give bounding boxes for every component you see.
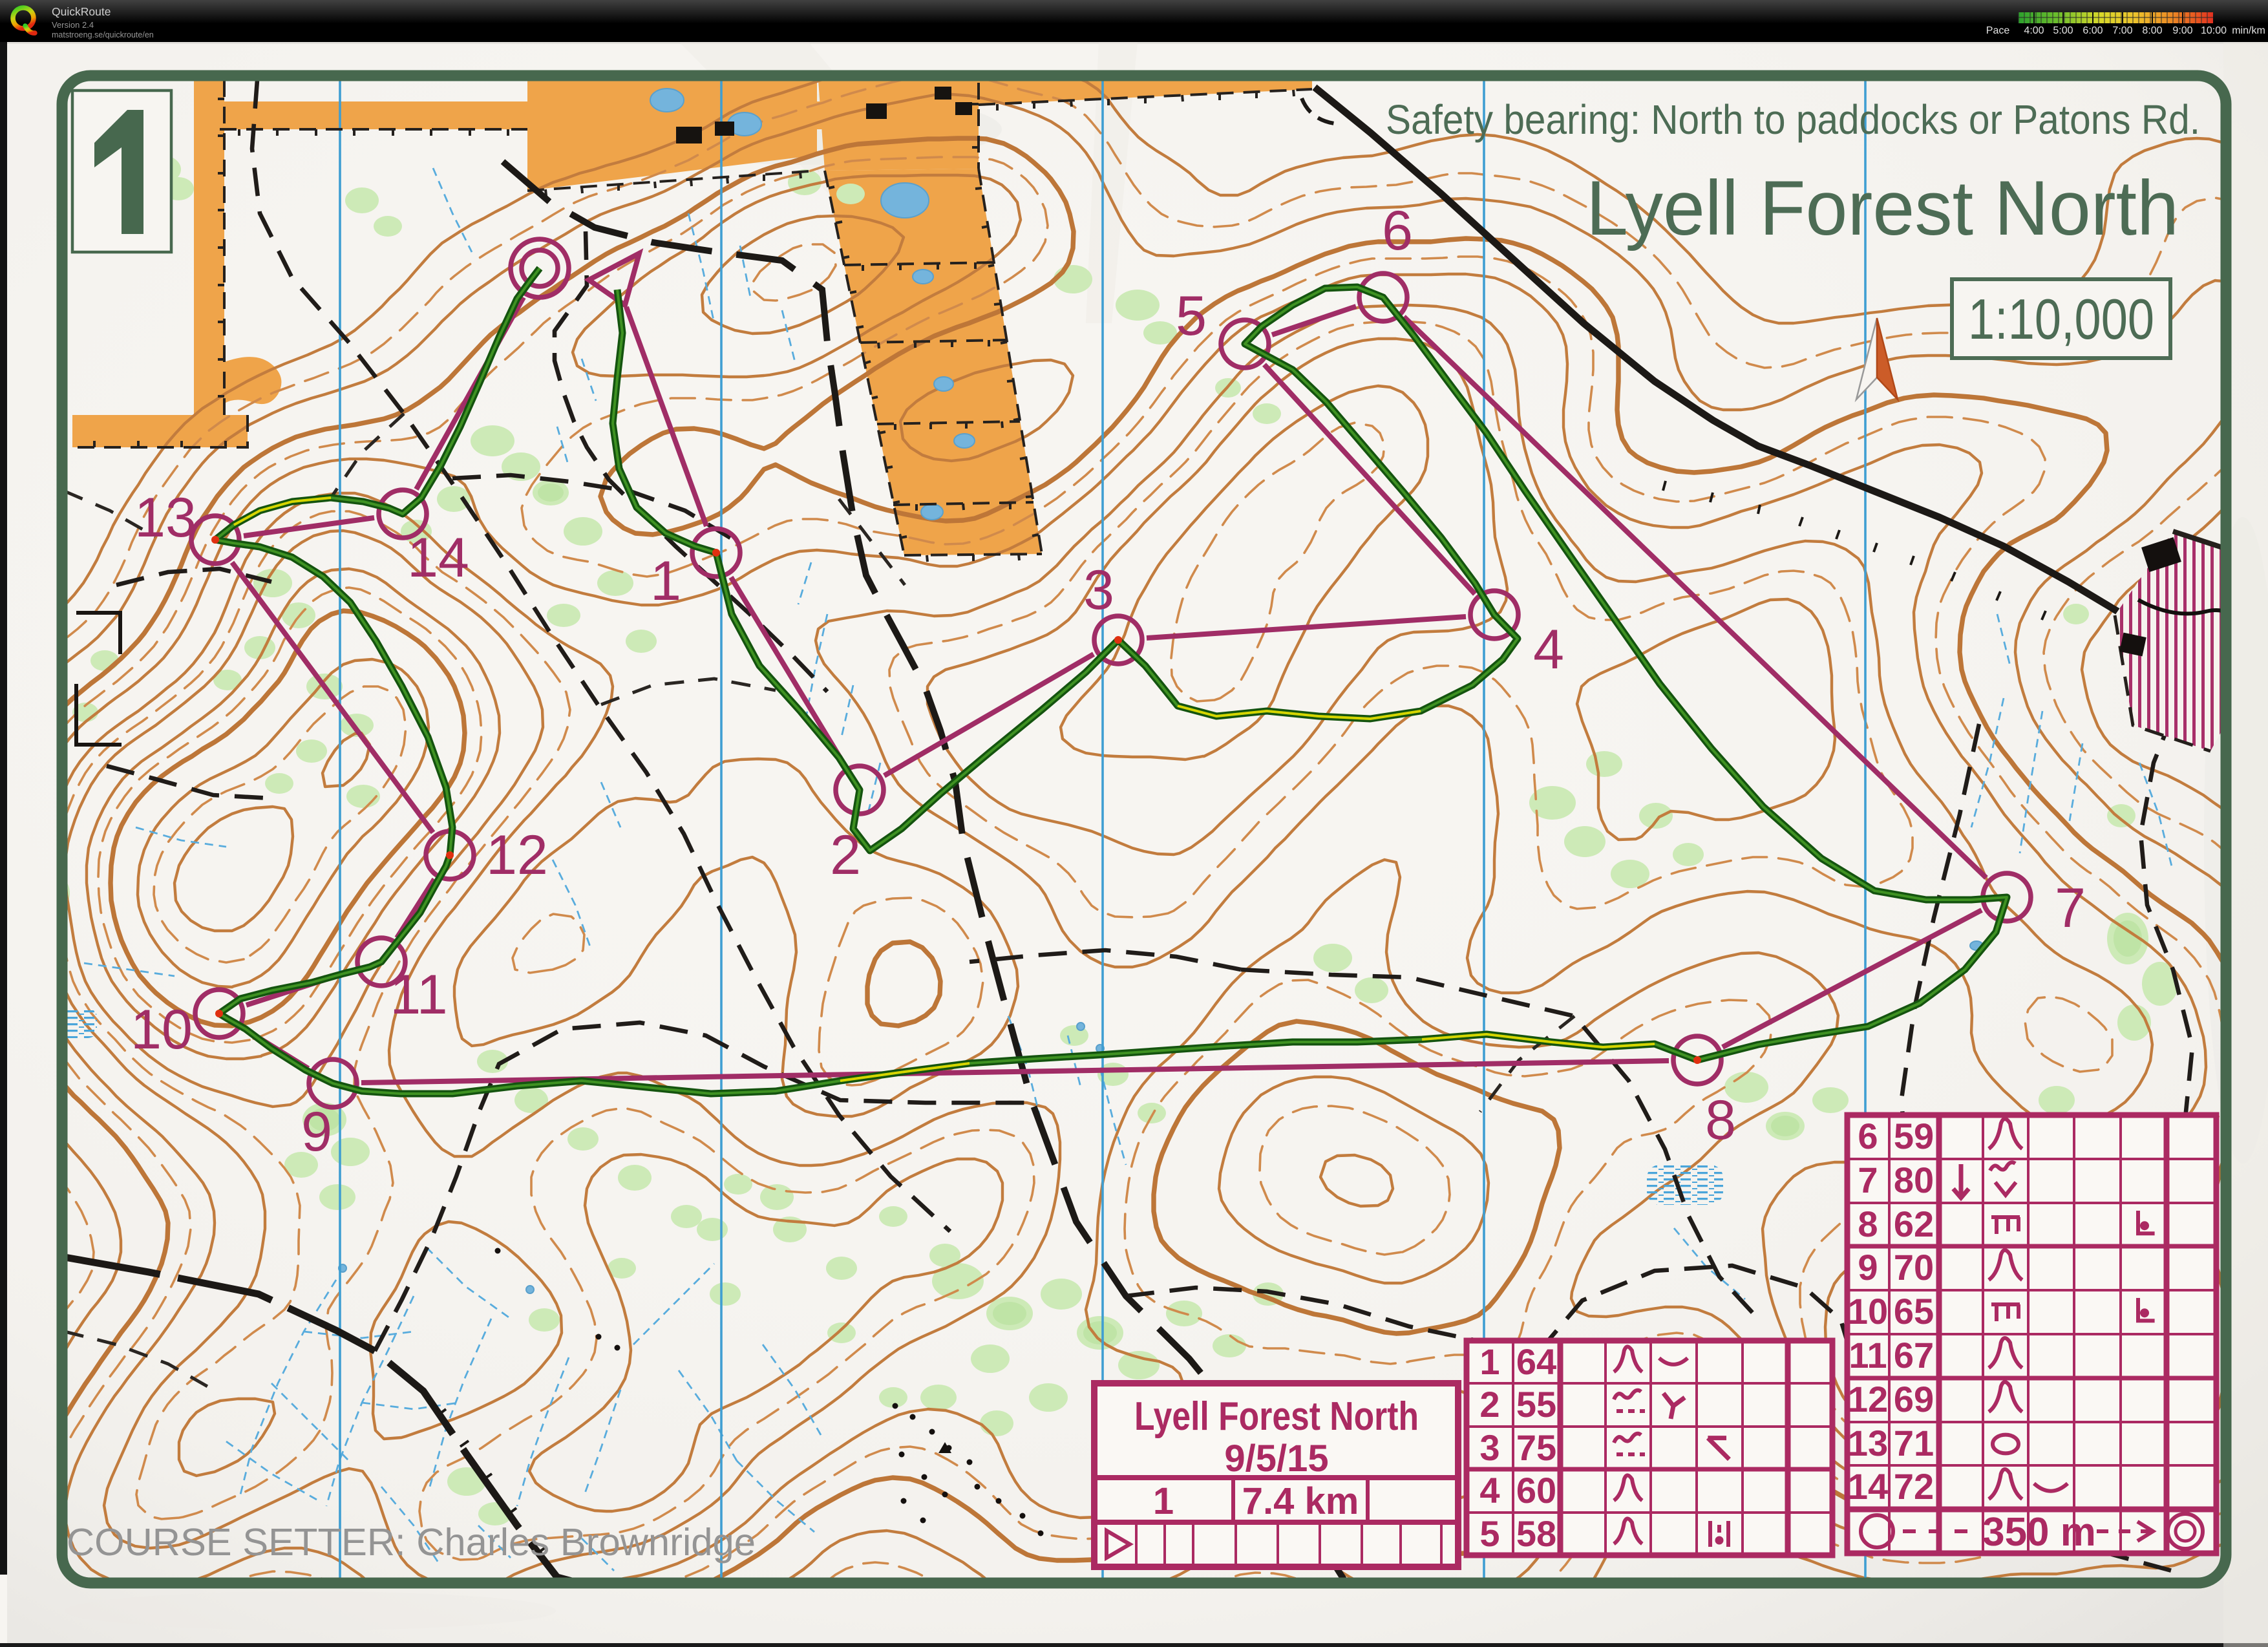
svg-text:7:00: 7:00 — [2112, 25, 2132, 36]
svg-text:3: 3 — [1083, 559, 1114, 621]
svg-text:7.4 km: 7.4 km — [1242, 1480, 1359, 1522]
svg-text:12: 12 — [486, 824, 548, 886]
svg-text:1: 1 — [1153, 1480, 1174, 1522]
svg-text:14: 14 — [1848, 1466, 1888, 1507]
svg-text:60: 60 — [1516, 1470, 1556, 1511]
svg-text:2: 2 — [1479, 1384, 1500, 1425]
svg-text:7: 7 — [1858, 1160, 1878, 1200]
svg-text:11: 11 — [390, 964, 447, 1026]
svg-text:matstroeng.se/quickroute/en: matstroeng.se/quickroute/en — [52, 30, 154, 39]
svg-text:1: 1 — [650, 550, 681, 612]
svg-text:Safety bearing: North to paddo: Safety bearing: North to paddocks or Pat… — [1386, 96, 2200, 143]
svg-text:350 m: 350 m — [1982, 1510, 2096, 1555]
svg-text:8:00: 8:00 — [2142, 25, 2162, 36]
svg-text:6: 6 — [1858, 1116, 1878, 1156]
svg-text:6: 6 — [1382, 200, 1413, 262]
svg-text:1: 1 — [1479, 1341, 1500, 1382]
svg-text:1:10,000: 1:10,000 — [1968, 287, 2154, 351]
svg-text:QuickRoute: QuickRoute — [52, 5, 111, 18]
svg-text:12: 12 — [1848, 1379, 1888, 1419]
svg-text:Lyell Forest North: Lyell Forest North — [1134, 1394, 1419, 1439]
svg-text:6:00: 6:00 — [2083, 25, 2103, 36]
svg-text:Pace: Pace — [1986, 25, 2010, 36]
svg-text:9:00: 9:00 — [2172, 25, 2192, 36]
svg-text:10:00: 10:00 — [2201, 25, 2227, 36]
svg-text:9: 9 — [301, 1101, 332, 1163]
svg-text:5:00: 5:00 — [2053, 25, 2073, 36]
svg-text:Lyell Forest North: Lyell Forest North — [1586, 165, 2179, 251]
svg-text:71: 71 — [1894, 1423, 1934, 1463]
svg-text:4: 4 — [1533, 619, 1564, 681]
svg-text:min/km: min/km — [2232, 25, 2265, 36]
svg-text:13: 13 — [1848, 1423, 1888, 1463]
svg-text:62: 62 — [1894, 1204, 1934, 1244]
svg-text:14: 14 — [407, 527, 469, 589]
svg-text:72: 72 — [1894, 1466, 1934, 1507]
svg-text:65: 65 — [1894, 1291, 1934, 1332]
svg-text:7: 7 — [2055, 877, 2086, 939]
svg-text:75: 75 — [1516, 1427, 1556, 1468]
svg-text:13: 13 — [134, 487, 196, 549]
svg-text:58: 58 — [1516, 1513, 1556, 1554]
svg-text:10: 10 — [1848, 1291, 1888, 1332]
svg-text:59: 59 — [1894, 1116, 1934, 1156]
svg-text:55: 55 — [1516, 1384, 1556, 1425]
svg-text:9: 9 — [1858, 1247, 1878, 1288]
svg-text:5: 5 — [1176, 285, 1207, 347]
svg-text:COURSE SETTER: Charles Brownri: COURSE SETTER: Charles Brownridge — [67, 1521, 756, 1564]
svg-text:3: 3 — [1479, 1427, 1500, 1468]
svg-text:11: 11 — [1849, 1335, 1887, 1376]
svg-text:8: 8 — [1858, 1204, 1878, 1244]
svg-text:4:00: 4:00 — [2024, 25, 2044, 36]
svg-text:8: 8 — [1705, 1089, 1736, 1151]
svg-text:5: 5 — [1479, 1513, 1500, 1554]
svg-text:80: 80 — [1894, 1160, 1934, 1200]
svg-text:69: 69 — [1894, 1379, 1934, 1419]
svg-text:70: 70 — [1894, 1247, 1934, 1288]
svg-text:Version 2.4: Version 2.4 — [52, 20, 94, 30]
svg-text:10: 10 — [131, 999, 193, 1061]
svg-text:4: 4 — [1479, 1470, 1500, 1511]
svg-text:67: 67 — [1894, 1335, 1934, 1376]
svg-text:9/5/15: 9/5/15 — [1224, 1438, 1328, 1480]
svg-text:64: 64 — [1516, 1341, 1556, 1382]
